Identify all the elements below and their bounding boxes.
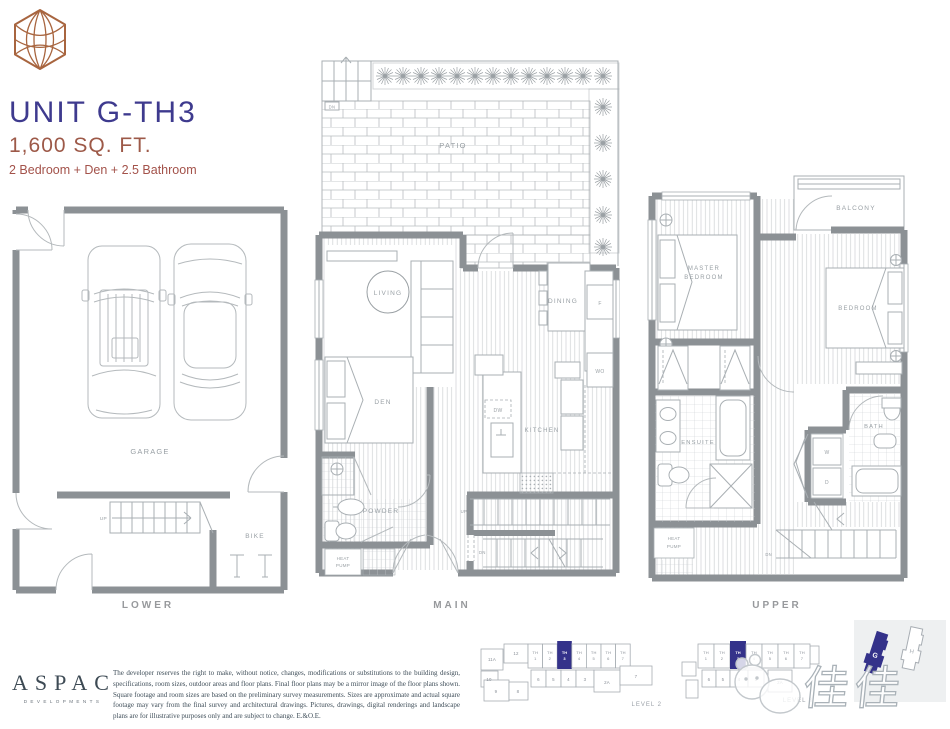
master-bedroom-label-1: MASTER [688, 266, 720, 272]
kp2-highlight-th3 [557, 641, 572, 669]
car-suv-icon [82, 246, 166, 418]
main-heat-pump-label-2: PUMP [336, 563, 350, 568]
developer-name: ASPAC [12, 670, 112, 696]
main-plan-name: MAIN [402, 600, 502, 611]
wall-oven-label: WO [595, 369, 604, 375]
powder-label: POWDER [363, 508, 399, 515]
level2-label: LEVEL 2 [632, 702, 662, 708]
kp2-unit: 5 [552, 677, 555, 682]
lower-floor-plan: UP GARAGE BIKE [8, 198, 290, 598]
bath-label: BATH [864, 424, 884, 430]
patio-dn-label: DN [329, 105, 336, 110]
den-furniture [325, 357, 413, 443]
kitchen-label: KITCHEN [525, 428, 560, 434]
main-heat-pump-label-1: HEAT [337, 556, 350, 561]
lower-plan-name: LOWER [98, 600, 198, 611]
upper-heat-pump [654, 528, 694, 558]
lower-up-label: UP [100, 516, 107, 522]
master-closets [658, 346, 750, 390]
upper-heat-pump-label-2: PUMP [667, 544, 681, 549]
kp2-th3: TH [562, 650, 567, 655]
upper-heat-pump-label-1: HEAT [668, 536, 681, 541]
kp2-unit: 10 [486, 677, 492, 682]
upper-floor-plan: BALCONY [646, 172, 918, 584]
unit-area: 1,600 SQ. FT. [9, 134, 197, 158]
developer-subtitle: DEVELOPMENTS [14, 699, 112, 704]
patio-label: PATIO [439, 141, 466, 150]
developer-logo: ASPAC DEVELOPMENTS [12, 670, 112, 704]
balcony-label: BALCONY [836, 205, 875, 212]
legal-disclaimer: The developer reserves the right to make… [113, 668, 460, 722]
kp2-unit: 12 [513, 651, 519, 656]
lower-stairs [110, 502, 213, 533]
main-heat-pump [325, 549, 395, 575]
bike-label: BIKE [245, 533, 265, 540]
ensuite-fixtures [655, 396, 755, 522]
kp2-unit: 11A [488, 657, 496, 662]
watermark-text: 佳佳房 [793, 652, 950, 729]
main-up-label: UP [461, 509, 467, 514]
main-dn-label: DN [479, 550, 486, 555]
bath-fixtures [849, 393, 901, 502]
ensuite-label: ENSUITE [681, 440, 715, 446]
kp2-th: TH [547, 650, 553, 655]
kp2-th: TH [605, 650, 611, 655]
kp3-unit: 6 [708, 677, 711, 682]
dryer-label: D [825, 480, 829, 486]
kp2-unit: 4 [567, 677, 570, 682]
unit-title: UNIT G-TH3 [9, 96, 197, 130]
unit-config: 2 Bedroom + Den + 2.5 Bathroom [9, 163, 197, 177]
dw-label: DW [494, 408, 503, 414]
kp2-unit: 3 [584, 677, 587, 682]
washer-label: W [824, 450, 829, 456]
kp3-th: TH [703, 650, 709, 655]
master-bedroom-label-2: BEDROOM [684, 275, 723, 281]
bike-racks-icon [230, 555, 272, 577]
title-block: UNIT G-TH3 1,600 SQ. FT. 2 Bedroom + Den… [9, 96, 197, 177]
garage-label: GARAGE [130, 447, 169, 456]
kp2-th: TH [532, 650, 538, 655]
floorplan-sheet: UNIT G-TH3 1,600 SQ. FT. 2 Bedroom + Den… [0, 0, 950, 729]
developer-hex-logo-icon [10, 8, 70, 72]
upper-closet-tile [655, 560, 693, 575]
kp2-unit: 6 [537, 677, 540, 682]
patio-brick-paving [322, 101, 590, 235]
bedroom-label: BEDROOM [838, 306, 877, 312]
den-label: DEN [374, 399, 391, 406]
kp2-unit: 9 [495, 689, 498, 694]
kp2-unit: 2A [604, 680, 610, 685]
keyplan-level-2: 11A 12 10 9 8 TH 1 TH 2 TH 3 TH 4 TH 5 T… [478, 636, 668, 710]
upper-plan-name: UPPER [727, 600, 827, 611]
fridge-label: F [598, 301, 601, 307]
main-floor-plan: DN PATIO [313, 55, 620, 583]
kp2-th: TH [576, 650, 582, 655]
washer-dryer-closet [794, 434, 843, 498]
car-sedan-icon [168, 244, 252, 420]
kp2-th: TH [591, 650, 597, 655]
upper-dn-label: DN [765, 552, 772, 557]
kp2-th: TH [620, 650, 626, 655]
kp2-unit: 7 [635, 674, 638, 679]
living-label: LIVING [374, 290, 403, 297]
dining-label: DINING [548, 298, 578, 305]
kp2-unit: 8 [517, 689, 520, 694]
